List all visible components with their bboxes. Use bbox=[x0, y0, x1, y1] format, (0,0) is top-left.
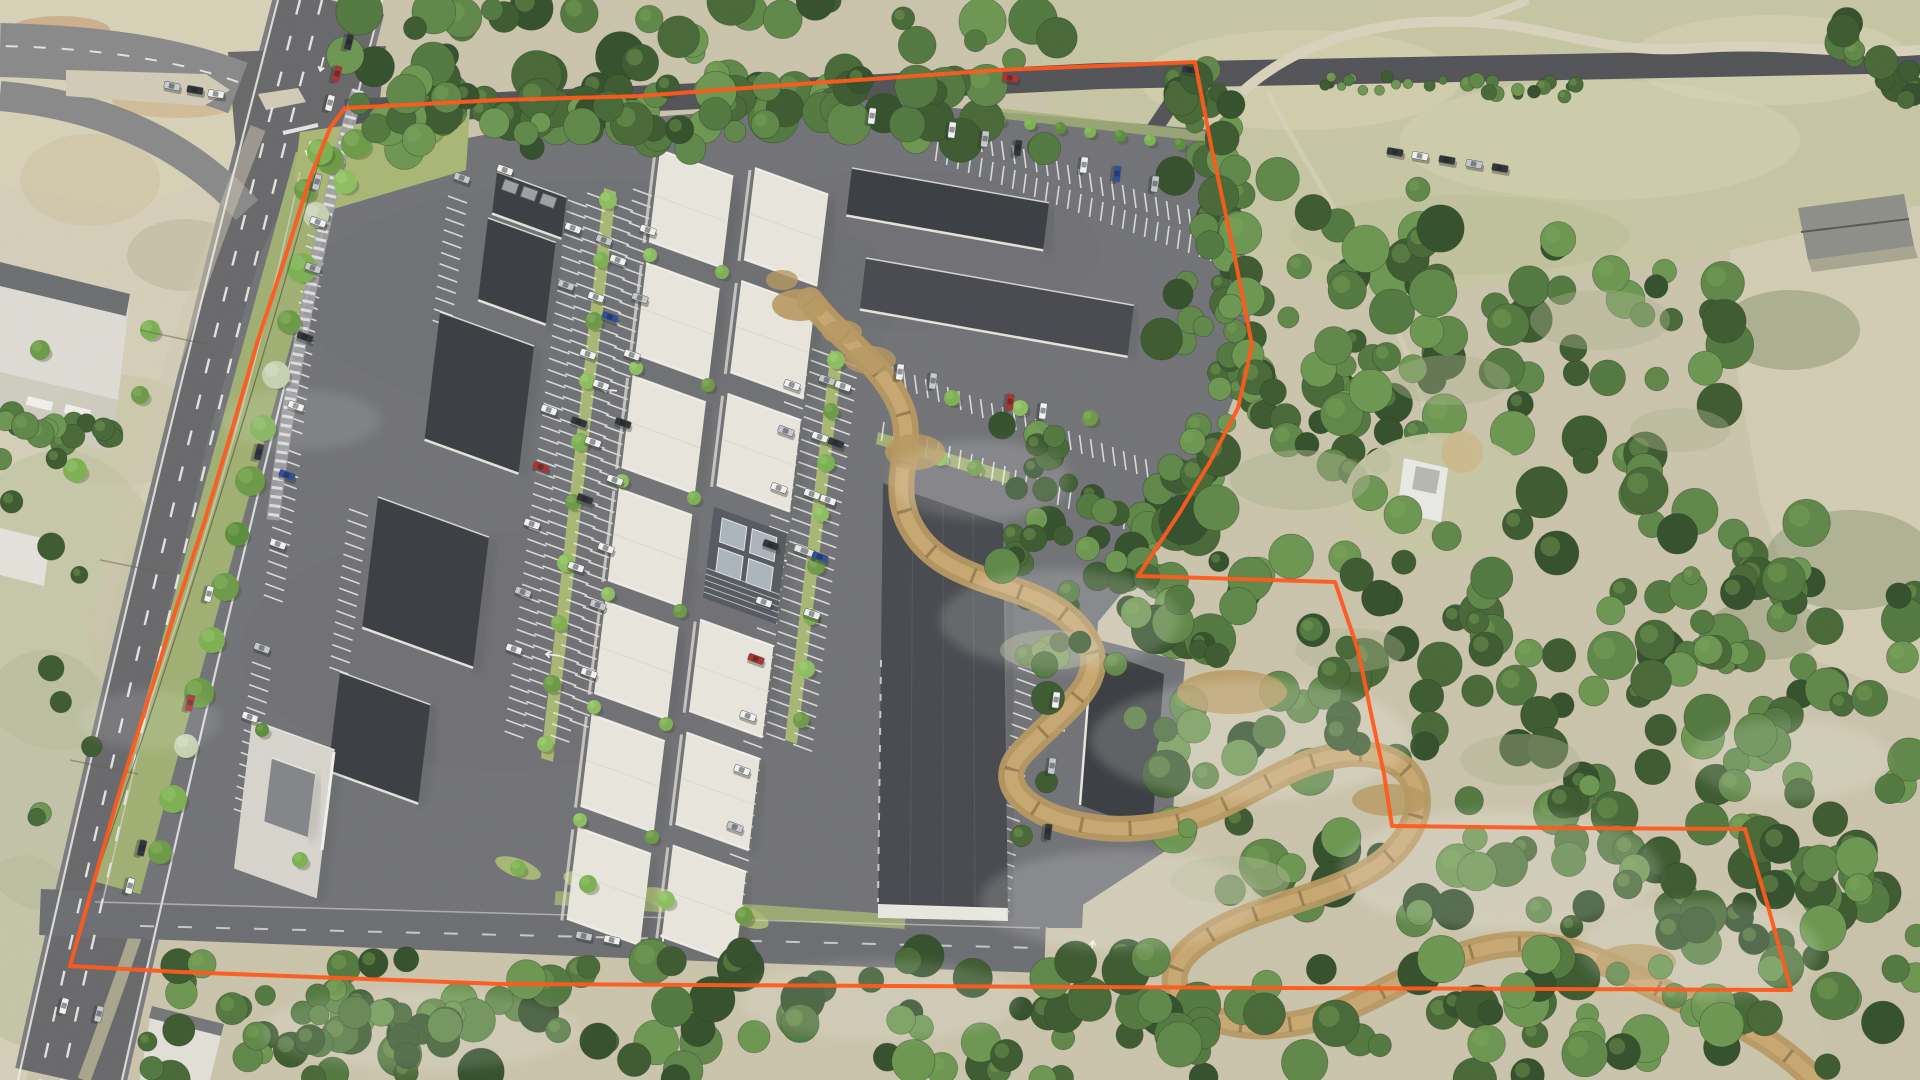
scene-layers bbox=[0, 0, 1920, 1080]
aerial-rendering-canvas bbox=[0, 0, 1920, 1080]
grain-texture bbox=[0, 0, 1920, 1080]
screenshot-root: Aerial 3D rendering of a proposed commer… bbox=[0, 0, 1920, 1080]
